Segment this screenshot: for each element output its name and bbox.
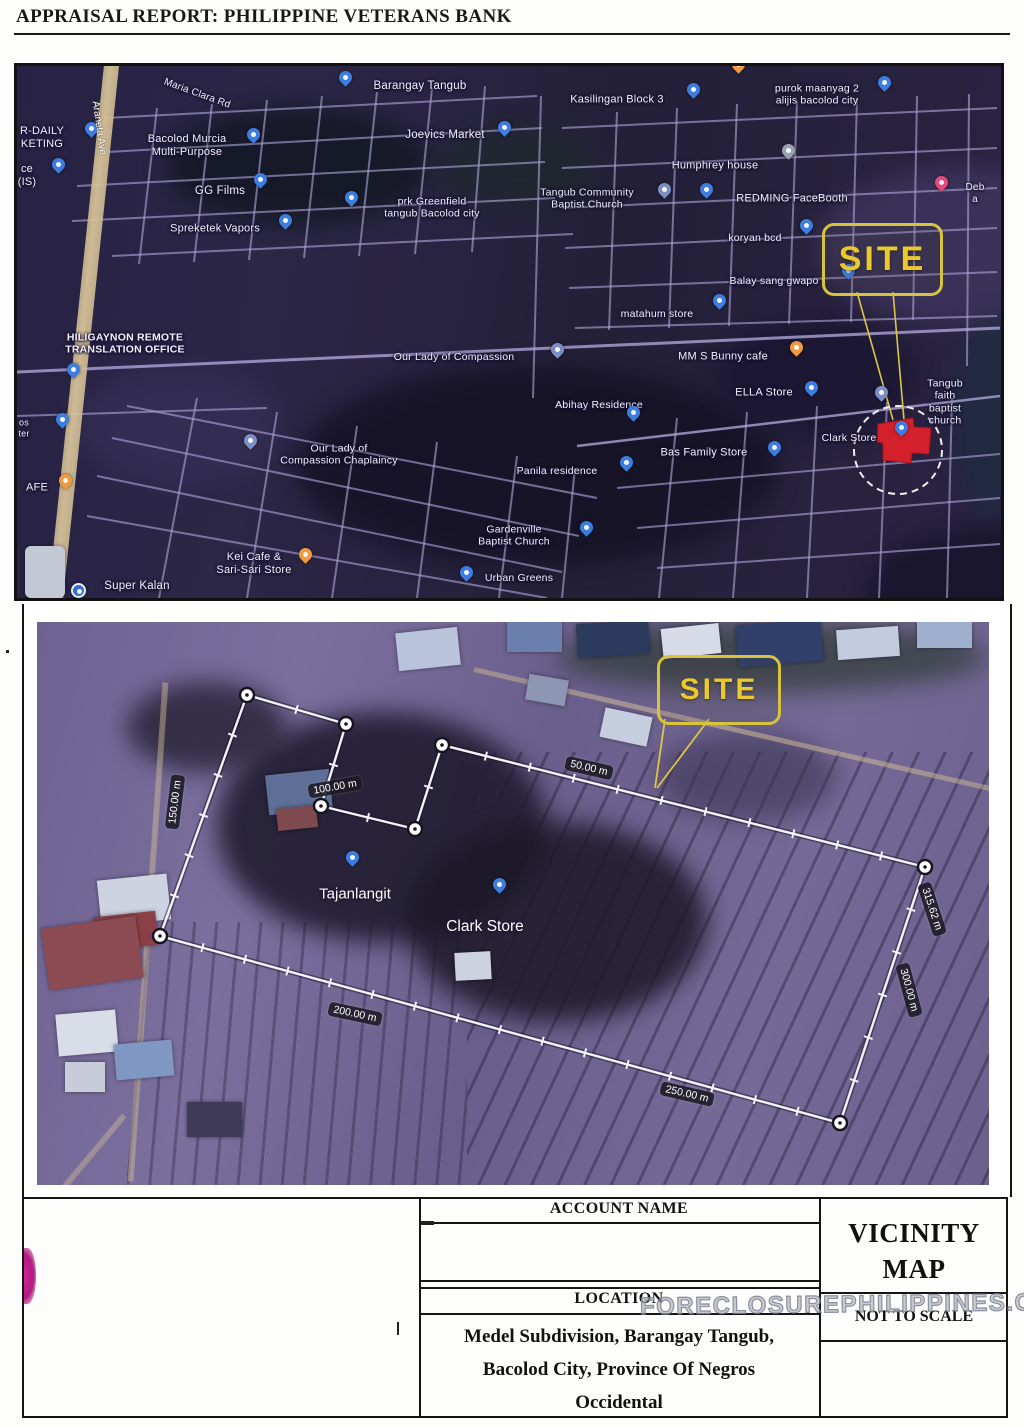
site-callout-label: SITE — [680, 673, 759, 707]
map-label: AFE — [26, 482, 48, 495]
watermark: FORECLOSUREPHILIPPINES.COM — [640, 1289, 1024, 1322]
account-name-value — [429, 1222, 809, 1280]
map-label: Our Lady of Compassion — [394, 351, 515, 363]
appraisal-report-page: APPRAISAL REPORT: PHILIPPINE VETERANS BA… — [0, 0, 1024, 1427]
site-callout-label: SITE — [839, 240, 927, 279]
site-callout: SITE — [657, 655, 781, 725]
map-label: HILIGAYNON REMOTE TRANSLATION OFFICE — [65, 332, 184, 357]
map-label: Humphrey house — [672, 160, 759, 173]
map-label: GG Films — [195, 185, 245, 199]
map-label: Gardenville Baptist Church — [478, 524, 550, 549]
site-satellite-image: 150.00 m100.00 m50.00 m315.62 m300.00 m2… — [37, 622, 989, 1185]
map-label: koryan bcd — [728, 232, 781, 244]
table-divider — [419, 1287, 819, 1289]
header-divider — [14, 33, 1010, 35]
map-label: os ter — [18, 417, 29, 438]
map-label: prk Greenfield tangub Bacolod city — [384, 196, 479, 221]
page-title: APPRAISAL REPORT: PHILIPPINE VETERANS BA… — [16, 6, 512, 28]
map-label: purok maanyag 2 alijis bacolod city — [775, 83, 859, 108]
map-label: ce (IS) — [18, 163, 37, 189]
map-label: matahum store — [621, 308, 694, 320]
site-boundary-polygon — [37, 622, 989, 1185]
map-label: Tangub faith baptist church — [917, 377, 973, 427]
vicinity-map-frame: Maria Clara RdBarangay TangubBacolod Mur… — [14, 63, 1004, 601]
map-label: Spreketek Vapors — [170, 223, 260, 236]
map-label: Barangay Tangub — [374, 80, 467, 94]
map-label: Bas Family Store — [661, 447, 748, 460]
table-divider — [419, 1280, 819, 1282]
map-label: Bacolod Murcia Multi-Purpose — [148, 133, 227, 159]
place-label: Tajanlangit — [319, 886, 391, 903]
table-divider — [819, 1340, 1008, 1342]
account-name-header: ACCOUNT NAME — [429, 1200, 809, 1218]
place-label: Clark Store — [446, 918, 524, 936]
location-value: Medel Subdivision, Barangay Tangub, Baco… — [429, 1320, 809, 1419]
map-label: Panila residence — [517, 465, 598, 477]
location-line: Bacolod City, Province Of Negros — [429, 1353, 809, 1386]
site-map-section: 150.00 m100.00 m50.00 m315.62 m300.00 m2… — [22, 604, 1012, 1197]
table-divider — [419, 1197, 421, 1418]
map-label: Kasilingan Block 3 — [570, 94, 664, 107]
vicinity-map-image: Maria Clara RdBarangay TangubBacolod Mur… — [17, 66, 1001, 598]
map-label: Kei Cafe & Sari-Sari Store — [216, 551, 291, 577]
map-label: Our Lady of Compassion Chaplaincy — [280, 443, 397, 468]
map-label: Tangub Community Baptist Church — [540, 187, 634, 212]
map-label: Super Kalan — [104, 580, 170, 594]
location-line: Medel Subdivision, Barangay Tangub, — [429, 1320, 809, 1353]
map-label: Clark Store — [822, 432, 877, 444]
scan-artifact — [397, 1322, 399, 1335]
map-label: MM S Bunny cafe — [678, 351, 768, 364]
map-label: Balay sang gwapo — [729, 275, 818, 287]
map-label: Urban Greens — [485, 572, 553, 584]
location-line: Occidental — [429, 1386, 809, 1419]
map-label: Deb a — [962, 182, 988, 206]
scan-artifact — [6, 650, 9, 653]
map-label: REDMING FaceBooth — [736, 193, 848, 206]
map-label: ELLA Store — [735, 387, 793, 400]
map-pin-icon — [71, 583, 86, 598]
map-label: R-DAILY KETING — [20, 125, 64, 151]
map-label: Joevics Market — [405, 129, 485, 143]
site-callout: SITE — [822, 223, 943, 296]
sheet-title: VICINITY MAP — [824, 1215, 1004, 1287]
scan-artifact — [421, 1221, 434, 1225]
